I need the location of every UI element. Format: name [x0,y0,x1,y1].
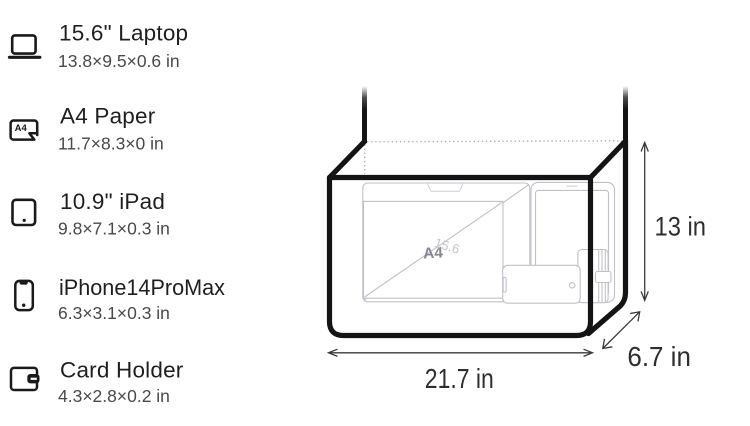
svg-text:15.6" Laptop: 15.6" Laptop [59,21,188,46]
svg-text:9.8×7.1×0.3 in: 9.8×7.1×0.3 in [58,219,170,239]
svg-text:iPhone14ProMax: iPhone14ProMax [59,275,226,300]
svg-text:A4: A4 [15,123,28,134]
svg-text:6.3×3.1×0.3 in: 6.3×3.1×0.3 in [58,303,170,323]
svg-text:10.9" iPad: 10.9" iPad [60,189,165,214]
svg-text:13.8×9.5×0.6 in: 13.8×9.5×0.6 in [58,51,180,71]
svg-text:Card Holder: Card Holder [60,357,184,382]
svg-text:4.3×2.8×0.2 in: 4.3×2.8×0.2 in [58,386,170,406]
svg-text:13 in: 13 in [655,212,707,242]
svg-text:11.7×8.3×0 in: 11.7×8.3×0 in [58,134,164,154]
svg-text:6.7 in: 6.7 in [627,341,691,372]
svg-text:A4 Paper: A4 Paper [60,103,156,128]
svg-text:21.7 in: 21.7 in [425,363,494,394]
